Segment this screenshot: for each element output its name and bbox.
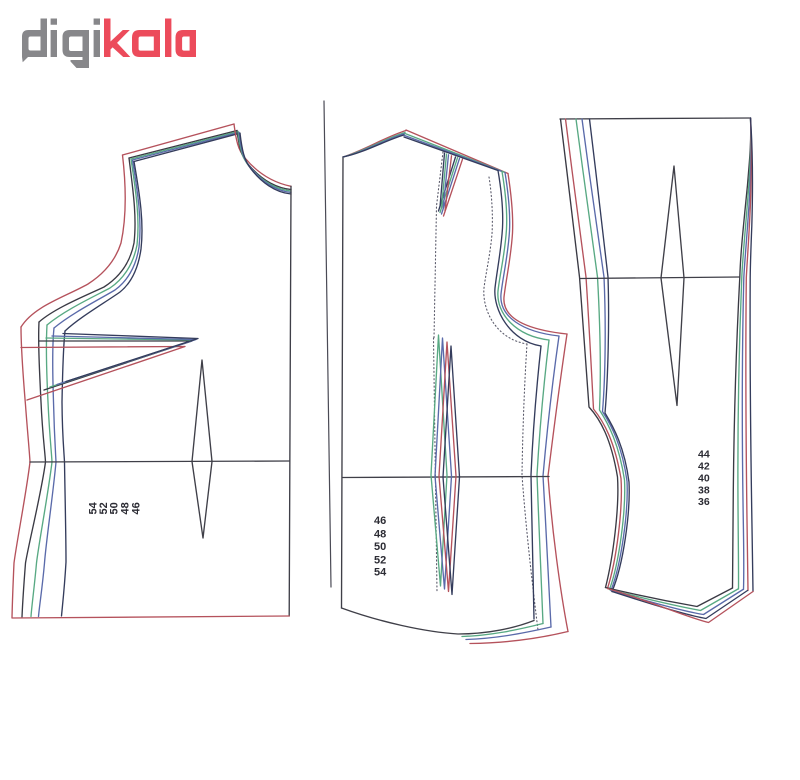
svg-text:48: 48 bbox=[374, 529, 386, 541]
svg-text:42: 42 bbox=[698, 461, 710, 473]
svg-text:44: 44 bbox=[698, 449, 710, 461]
svg-text:46: 46 bbox=[131, 502, 143, 514]
svg-text:38: 38 bbox=[698, 485, 710, 497]
svg-text:52: 52 bbox=[374, 555, 386, 567]
svg-text:40: 40 bbox=[698, 473, 710, 485]
svg-text:36: 36 bbox=[698, 496, 710, 508]
svg-text:50: 50 bbox=[374, 541, 386, 553]
svg-text:46: 46 bbox=[374, 515, 386, 527]
svg-text:54: 54 bbox=[374, 567, 387, 579]
